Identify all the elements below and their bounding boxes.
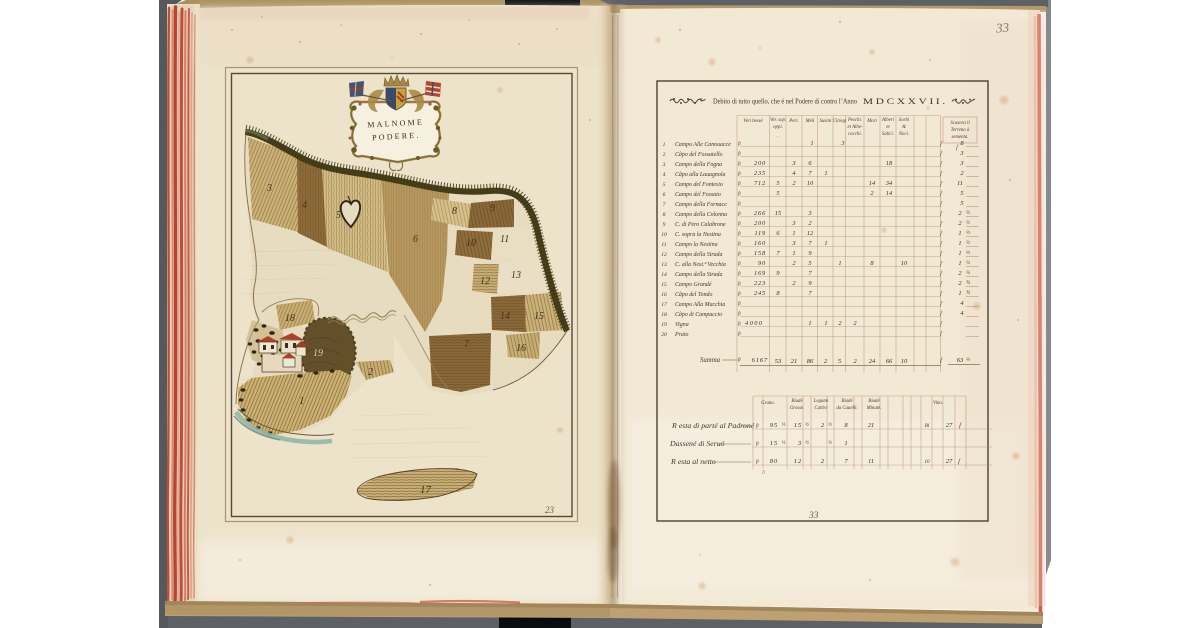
svg-text:Cãpo di Campaccio: Cãpo di Campaccio (675, 312, 722, 318)
svg-text:C. sopra la Nestina: C. sopra la Nestina (675, 232, 721, 238)
svg-text:10: 10 (901, 260, 908, 267)
svg-text:18: 18 (285, 313, 295, 324)
svg-text:½: ½ (966, 221, 970, 226)
svg-text:9: 9 (490, 203, 495, 214)
svg-text:½: ½ (966, 211, 970, 216)
svg-text:5: 5 (776, 190, 779, 197)
svg-text:Campo Grandé: Campo Grandé (675, 282, 712, 288)
svg-text:80: 80 (770, 458, 778, 465)
svg-text:Minuté.: Minuté. (866, 406, 882, 411)
svg-text:Cãpo del Fossatello: Cãpo del Fossatello (675, 152, 723, 158)
svg-text:3: 3 (959, 150, 963, 157)
svg-text:1: 1 (958, 290, 961, 297)
svg-text:8: 8 (762, 470, 765, 476)
svg-text:½: ½ (966, 241, 970, 246)
svg-text:1: 1 (663, 142, 666, 148)
svg-text:⅓: ⅓ (966, 251, 970, 256)
svg-text:cocchi.: cocchi. (848, 132, 862, 137)
svg-text:Susini: Susini (820, 119, 832, 124)
svg-text:11: 11 (500, 234, 509, 245)
svg-text:⅓: ⅓ (966, 358, 970, 363)
svg-text:2: 2 (663, 152, 666, 158)
svg-text:8: 8 (663, 212, 666, 218)
svg-text:16: 16 (516, 343, 526, 354)
svg-text:½: ½ (805, 441, 809, 446)
svg-text:1: 1 (808, 320, 811, 327)
svg-text:Campo della Strada: Campo della Strada (675, 272, 723, 278)
svg-text:10: 10 (466, 238, 476, 249)
svg-text:Cãpo del Tondo: Cãpo del Tondo (675, 292, 712, 298)
svg-text:Campo della Fogna: Campo della Fogna (675, 162, 722, 168)
svg-text:1: 1 (824, 170, 827, 177)
svg-text:200: 200 (754, 220, 766, 227)
svg-text:Campo la Nestina: Campo la Nestina (675, 242, 718, 248)
svg-text:1: 1 (824, 240, 827, 247)
svg-text:Veri bessé: Veri bessé (743, 119, 763, 124)
svg-text:712: 712 (754, 180, 766, 187)
svg-text:C. di Pero Calabrone: C. di Pero Calabrone (675, 222, 726, 228)
svg-text:Campo della Colonna: Campo della Colonna (675, 212, 727, 218)
svg-text:Melí: Melí (805, 119, 815, 124)
svg-text:11: 11 (868, 458, 874, 465)
svg-text:3: 3 (840, 140, 844, 147)
svg-text:3: 3 (266, 183, 272, 194)
svg-text:1: 1 (299, 395, 305, 407)
svg-text:Debito di tutto quello, che é: Debito di tutto quello, che é nel Podere… (713, 98, 857, 106)
svg-text:13: 13 (511, 270, 521, 281)
svg-text:169: 169 (754, 270, 766, 277)
svg-text:4000: 4000 (745, 320, 763, 327)
svg-text:Campo della Strada: Campo della Strada (675, 252, 723, 258)
svg-text:Prato: Prato (674, 332, 688, 338)
svg-text:10: 10 (925, 460, 931, 465)
svg-text:33: 33 (808, 511, 819, 521)
svg-text:Dassené di Seruó: Dassené di Seruó (669, 439, 725, 448)
svg-text:Campo del Fontesio: Campo del Fontesio (675, 182, 723, 188)
svg-text:24: 24 (869, 358, 876, 365)
svg-text:21: 21 (791, 358, 798, 365)
svg-text:2: 2 (368, 367, 373, 378)
svg-text:5: 5 (960, 200, 963, 207)
svg-text:Biadé: Biadé (841, 399, 853, 404)
svg-text:12: 12 (807, 230, 814, 237)
svg-text:MDCXXVII.: MDCXXVII. (863, 97, 948, 106)
svg-text:Campo della Fornace: Campo della Fornace (675, 202, 727, 208)
svg-text:3: 3 (807, 210, 811, 217)
svg-text:6: 6 (663, 192, 666, 198)
svg-text:5: 5 (663, 182, 666, 188)
svg-text:Grosse.: Grosse. (790, 406, 805, 411)
svg-text:1: 1 (792, 230, 795, 237)
svg-text:Campo Alla Macchia: Campo Alla Macchia (675, 302, 725, 308)
svg-text:86: 86 (807, 358, 814, 365)
svg-text:14: 14 (500, 311, 510, 322)
svg-text:2: 2 (821, 458, 825, 465)
svg-text:160: 160 (754, 240, 766, 247)
svg-text:4: 4 (663, 172, 666, 178)
svg-text:18: 18 (661, 312, 667, 318)
svg-text:Terreno à: Terreno à (951, 128, 970, 133)
svg-text:12: 12 (661, 252, 667, 258)
svg-text:¾: ¾ (966, 291, 970, 296)
svg-text:18: 18 (886, 160, 893, 167)
svg-text:5: 5 (808, 260, 811, 267)
svg-text:3: 3 (791, 240, 795, 247)
svg-text:1: 1 (838, 260, 841, 267)
svg-text:15: 15 (534, 311, 544, 322)
svg-text:R esta di parté al Padroné: R esta di parté al Padroné (671, 421, 755, 430)
svg-text:10: 10 (807, 180, 814, 187)
svg-text:Campo del Fossato: Campo del Fossato (675, 192, 721, 198)
svg-text:Cattivi: Cattivi (814, 406, 828, 411)
svg-text:R esta al netto: R esta al netto (670, 457, 716, 466)
svg-text:14: 14 (869, 180, 876, 187)
svg-text:6167: 6167 (752, 357, 768, 364)
svg-text:Peri.: Peri. (788, 119, 798, 124)
svg-text:19: 19 (313, 348, 323, 359)
svg-text:34: 34 (885, 180, 893, 187)
svg-text:20: 20 (661, 332, 667, 338)
svg-text:½: ½ (828, 423, 832, 428)
svg-text:7: 7 (663, 202, 666, 208)
svg-text:Ver. sop.: Ver. sop. (770, 118, 786, 123)
svg-text:14: 14 (661, 272, 667, 278)
svg-text:Biadé: Biadé (868, 399, 880, 404)
svg-text:Vigna: Vigna (675, 322, 689, 328)
svg-text:21: 21 (868, 422, 875, 429)
svg-text:5: 5 (776, 180, 779, 187)
svg-text:9: 9 (663, 222, 666, 228)
svg-text:223: 223 (754, 280, 766, 287)
svg-text:Scasora il: Scasora il (950, 121, 970, 126)
svg-text:14: 14 (886, 190, 893, 197)
svg-text:15: 15 (770, 440, 778, 447)
svg-text:oppi.: oppi. (773, 125, 783, 130)
svg-text:66: 66 (886, 358, 893, 365)
svg-text:Ciriegi: Ciriegi (833, 119, 847, 124)
svg-text:1: 1 (958, 250, 961, 257)
svg-text:¾: ¾ (966, 281, 970, 286)
svg-text:½: ½ (782, 441, 786, 446)
svg-text:C. alla Nest.ª Vecchia: C. alla Nest.ª Vecchia (675, 262, 726, 268)
svg-text:da Cauelli.: da Cauelli. (836, 406, 857, 411)
svg-text:&: & (902, 125, 906, 130)
svg-text:½: ½ (805, 423, 809, 428)
svg-text:Legumi: Legumi (813, 399, 829, 404)
svg-text:.: . (777, 134, 778, 139)
svg-text:15: 15 (794, 422, 802, 429)
svg-text:3: 3 (797, 440, 802, 447)
svg-text:95: 95 (770, 422, 778, 429)
svg-text:10: 10 (661, 232, 667, 238)
svg-text:158: 158 (754, 250, 766, 257)
svg-text:119: 119 (754, 230, 766, 237)
svg-text:Summa: Summa (700, 357, 721, 364)
svg-text:3: 3 (791, 160, 795, 167)
svg-text:Biadé: Biadé (791, 399, 803, 404)
svg-text:1: 1 (958, 260, 961, 267)
svg-text:½: ½ (782, 423, 786, 428)
svg-text:12: 12 (480, 276, 490, 287)
svg-text:¼: ¼ (966, 271, 970, 276)
svg-text:1: 1 (958, 240, 961, 247)
svg-text:266: 266 (754, 210, 766, 217)
svg-text:et Albe-: et Albe- (848, 125, 863, 130)
svg-text:Bl: Bl (925, 424, 930, 429)
svg-text:3: 3 (662, 162, 666, 168)
svg-text:5: 5 (336, 210, 341, 221)
svg-text:Mori: Mori (866, 119, 877, 124)
svg-text:2: 2 (821, 422, 825, 429)
svg-text:Salici.: Salici. (882, 132, 894, 137)
svg-text:Noci.: Noci. (898, 132, 909, 137)
svg-text:16: 16 (661, 292, 667, 298)
svg-text:1: 1 (810, 140, 813, 147)
svg-text:11: 11 (957, 180, 963, 187)
svg-text:Alberi: Alberi (881, 118, 895, 123)
svg-text:½: ½ (828, 441, 832, 446)
svg-text:4: 4 (302, 200, 307, 211)
svg-text:33: 33 (995, 20, 1011, 36)
svg-text:235: 235 (754, 170, 766, 177)
svg-text:1: 1 (958, 230, 961, 237)
svg-text:¼: ¼ (966, 261, 970, 266)
svg-text:245: 245 (754, 290, 766, 297)
svg-text:15: 15 (661, 282, 667, 288)
svg-text:27: 27 (946, 422, 953, 429)
svg-text:17: 17 (420, 484, 432, 496)
svg-text:19: 19 (661, 322, 667, 328)
svg-text:Campo Alle Canouacce: Campo Alle Canouacce (675, 142, 731, 148)
svg-text:1: 1 (824, 320, 827, 327)
svg-text:200: 200 (754, 160, 766, 167)
svg-text:11: 11 (661, 242, 666, 248)
svg-text:6: 6 (413, 234, 418, 245)
svg-text:13: 13 (661, 262, 667, 268)
svg-text:5: 5 (960, 190, 963, 197)
svg-text:15: 15 (775, 210, 781, 217)
svg-text:12: 12 (794, 458, 802, 465)
svg-text:63: 63 (957, 357, 964, 364)
svg-text:90: 90 (758, 260, 766, 267)
svg-text:Peschi.: Peschi. (847, 118, 862, 123)
svg-text:3: 3 (959, 160, 963, 167)
svg-text:27: 27 (946, 458, 953, 465)
svg-text:Vino.: Vino. (933, 401, 943, 406)
svg-text:1: 1 (792, 250, 795, 257)
svg-text:23: 23 (545, 505, 555, 515)
svg-text:1: 1 (844, 440, 847, 447)
svg-text:Sorbi: Sorbi (899, 118, 910, 123)
svg-text:3: 3 (791, 220, 795, 227)
svg-text:17: 17 (661, 302, 667, 308)
svg-text:Grano.: Grano. (761, 401, 775, 406)
svg-text:8: 8 (452, 206, 457, 217)
svg-text:10: 10 (901, 358, 908, 365)
svg-text:53: 53 (775, 358, 782, 365)
svg-text:Cãpo alla Lauagnola: Cãpo alla Lauagnola (675, 172, 725, 178)
svg-text:⅓: ⅓ (966, 231, 970, 236)
